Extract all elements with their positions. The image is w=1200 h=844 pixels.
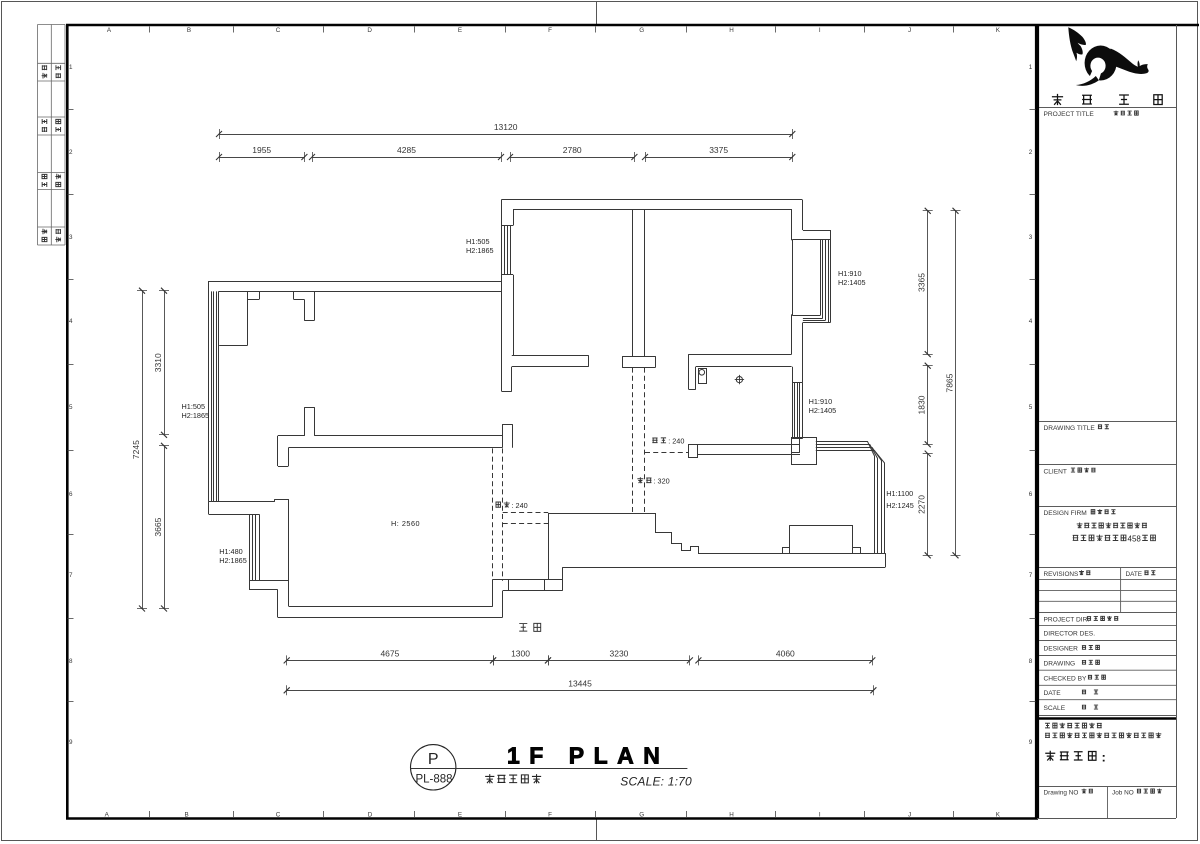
svg-text:E: E (458, 27, 462, 34)
svg-text:H1:1100: H1:1100 (886, 489, 913, 498)
svg-text:Drawing NO: Drawing NO (1044, 789, 1079, 796)
svg-text:DIRECTOR DES.: DIRECTOR DES. (1044, 631, 1096, 638)
svg-text:PL-888: PL-888 (415, 774, 452, 786)
svg-text:DRAWING: DRAWING (1044, 660, 1076, 667)
svg-text:7: 7 (1029, 572, 1033, 579)
svg-text:3: 3 (69, 234, 73, 241)
svg-text:1830: 1830 (917, 395, 927, 414)
svg-text:3365: 3365 (917, 273, 927, 292)
svg-text:8: 8 (1029, 658, 1033, 665)
svg-text:REVISIONS: REVISIONS (1044, 571, 1079, 578)
svg-text:H1:910: H1:910 (809, 397, 833, 406)
svg-text:H1:480: H1:480 (219, 547, 243, 556)
svg-text:DRAWING TITLE: DRAWING TITLE (1044, 425, 1096, 432)
svg-text:DATE: DATE (1126, 571, 1143, 578)
svg-text:H2:1405: H2:1405 (809, 406, 837, 415)
svg-text:H2:1245: H2:1245 (886, 501, 914, 510)
svg-text:7245: 7245 (131, 440, 141, 459)
svg-text:C: C (276, 27, 281, 34)
svg-text:2: 2 (69, 149, 73, 156)
svg-text:13120: 13120 (494, 122, 518, 132)
svg-text:1: 1 (1029, 64, 1033, 71)
svg-text:H: H (729, 812, 734, 819)
svg-text:4: 4 (1029, 318, 1033, 325)
svg-text:D: D (368, 812, 373, 819)
svg-text:3375: 3375 (709, 145, 728, 155)
svg-text:G: G (639, 812, 644, 819)
svg-text::: : (1102, 750, 1106, 765)
svg-text:B: B (184, 812, 188, 819)
svg-text:4675: 4675 (380, 648, 399, 658)
svg-text:I: I (819, 812, 821, 819)
svg-text:13445: 13445 (568, 678, 592, 688)
svg-text:: 240: : 240 (512, 501, 528, 510)
svg-text:3230: 3230 (609, 648, 628, 658)
svg-text:4285: 4285 (397, 145, 416, 155)
svg-text:: 320: : 320 (654, 477, 670, 486)
svg-text:H2:1865: H2:1865 (219, 556, 247, 565)
svg-text:3310: 3310 (153, 353, 163, 372)
svg-text:DATE: DATE (1044, 690, 1062, 697)
svg-text:B: B (187, 27, 191, 34)
svg-text:1955: 1955 (252, 145, 271, 155)
svg-text:SCALE: 1:70: SCALE: 1:70 (620, 775, 692, 789)
svg-text:SCALE: SCALE (1044, 705, 1066, 712)
svg-text:I: I (819, 27, 821, 34)
svg-text:1: 1 (69, 64, 73, 71)
svg-text:D: D (367, 27, 372, 34)
svg-text:H1:505: H1:505 (182, 402, 206, 411)
svg-text:4: 4 (69, 318, 73, 325)
svg-text:9: 9 (1029, 739, 1033, 746)
svg-text:P: P (428, 751, 439, 768)
svg-text:DESIGNER: DESIGNER (1044, 646, 1079, 653)
svg-text:3: 3 (1029, 234, 1033, 241)
svg-text:E: E (458, 812, 462, 819)
svg-text:H1:910: H1:910 (838, 269, 862, 278)
svg-text:H1:505: H1:505 (466, 237, 490, 246)
svg-text:458: 458 (1128, 534, 1142, 543)
svg-text:CHECKED BY: CHECKED BY (1044, 675, 1087, 682)
svg-text:7865: 7865 (945, 373, 955, 392)
svg-text:G: G (639, 27, 644, 34)
svg-text:H: 2560: H: 2560 (391, 519, 420, 528)
svg-text:PROJECT DIR.: PROJECT DIR. (1044, 617, 1090, 624)
svg-text:Job NO: Job NO (1112, 789, 1134, 796)
svg-text:PROJECT TITLE: PROJECT TITLE (1044, 111, 1095, 118)
svg-text:6: 6 (1029, 491, 1033, 498)
svg-text:9: 9 (69, 739, 73, 746)
svg-text:H: H (729, 27, 734, 34)
svg-text:4060: 4060 (776, 648, 795, 658)
svg-text:J: J (908, 27, 911, 34)
svg-text:F: F (548, 812, 552, 819)
svg-text:7: 7 (69, 572, 73, 579)
svg-text:5: 5 (1029, 404, 1033, 411)
svg-text:5: 5 (69, 404, 73, 411)
svg-text:: 240: : 240 (668, 437, 684, 446)
svg-text:H2:1865: H2:1865 (182, 411, 210, 420)
svg-text:DESIGN FIRM: DESIGN FIRM (1044, 510, 1087, 517)
svg-text:8: 8 (69, 658, 73, 665)
svg-text:F: F (548, 27, 552, 34)
svg-text:C: C (276, 812, 281, 819)
svg-text:2: 2 (1029, 149, 1033, 156)
svg-text:6: 6 (69, 491, 73, 498)
svg-text:1300: 1300 (511, 648, 530, 658)
svg-text:2780: 2780 (563, 145, 582, 155)
svg-text:J: J (908, 812, 911, 819)
svg-text:3665: 3665 (153, 517, 163, 536)
svg-text:H2:1865: H2:1865 (466, 246, 494, 255)
svg-text:H2:1405: H2:1405 (838, 278, 866, 287)
svg-text:2270: 2270 (917, 495, 927, 514)
svg-text:CLIENT: CLIENT (1044, 468, 1067, 475)
svg-text:1F PLAN: 1F PLAN (507, 743, 669, 769)
